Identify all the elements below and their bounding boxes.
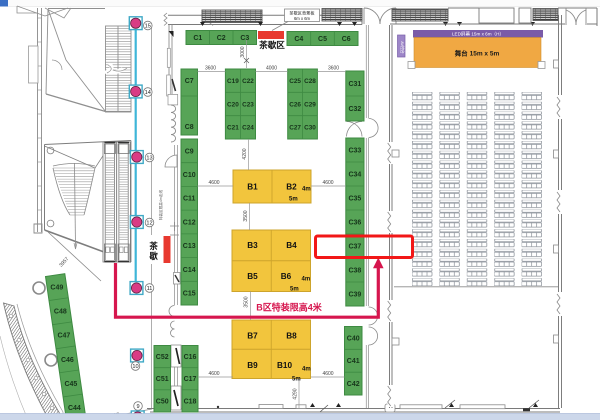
svg-text:C37: C37 bbox=[348, 243, 361, 250]
svg-text:B7: B7 bbox=[247, 332, 258, 341]
svg-text:B2: B2 bbox=[286, 183, 297, 192]
svg-text:B6: B6 bbox=[281, 272, 292, 281]
svg-text:C52: C52 bbox=[156, 354, 169, 361]
svg-text:3500: 3500 bbox=[243, 210, 249, 221]
svg-text:B区特装限高4米: B区特装限高4米 bbox=[256, 302, 323, 313]
svg-text:C3: C3 bbox=[240, 35, 249, 42]
svg-text:C35: C35 bbox=[348, 195, 361, 202]
svg-text:C8: C8 bbox=[185, 124, 194, 131]
svg-text:3500: 3500 bbox=[244, 296, 250, 307]
svg-text:C4: C4 bbox=[294, 36, 303, 43]
svg-text:C34: C34 bbox=[348, 171, 361, 178]
svg-text:C48: C48 bbox=[54, 309, 67, 316]
svg-text:4m: 4m bbox=[302, 187, 311, 193]
svg-text:C19: C19 bbox=[227, 78, 239, 85]
svg-text:C14: C14 bbox=[183, 267, 196, 274]
svg-text:C15: C15 bbox=[183, 291, 196, 298]
svg-text:11: 11 bbox=[147, 286, 153, 292]
svg-text:C13: C13 bbox=[183, 243, 196, 250]
svg-text:C28: C28 bbox=[304, 78, 316, 85]
svg-text:12: 12 bbox=[146, 221, 152, 227]
svg-text:4600: 4600 bbox=[322, 180, 333, 186]
svg-text:C39: C39 bbox=[348, 291, 361, 298]
svg-text:C17: C17 bbox=[184, 376, 197, 383]
svg-text:C33: C33 bbox=[348, 147, 361, 154]
svg-text:4m: 4m bbox=[302, 277, 311, 283]
svg-text:C16: C16 bbox=[184, 354, 197, 361]
svg-text:C22: C22 bbox=[242, 78, 254, 85]
svg-text:C6: C6 bbox=[342, 36, 351, 43]
svg-text:LED屏幕 15m x 6m（H）: LED屏幕 15m x 6m（H） bbox=[452, 30, 504, 37]
svg-text:4600: 4600 bbox=[322, 371, 333, 377]
svg-text:C20: C20 bbox=[227, 101, 239, 108]
svg-text:C18: C18 bbox=[184, 398, 197, 405]
svg-text:C12: C12 bbox=[183, 219, 196, 226]
svg-text:歇: 歇 bbox=[148, 251, 158, 261]
svg-text:C7: C7 bbox=[185, 78, 194, 85]
svg-text:C26: C26 bbox=[289, 101, 301, 108]
svg-text:C51: C51 bbox=[156, 376, 169, 383]
svg-text:C2: C2 bbox=[217, 35, 226, 42]
svg-text:13: 13 bbox=[146, 156, 152, 162]
svg-text:3600: 3600 bbox=[205, 66, 216, 72]
svg-text:4600: 4600 bbox=[208, 371, 219, 377]
svg-text:C41: C41 bbox=[347, 358, 360, 365]
svg-text:C11: C11 bbox=[183, 196, 196, 203]
svg-text:10: 10 bbox=[132, 364, 138, 370]
svg-text:4290: 4290 bbox=[293, 388, 299, 399]
svg-text:舞台 15m x 5m: 舞台 15m x 5m bbox=[455, 49, 500, 58]
svg-text:C44: C44 bbox=[68, 405, 81, 412]
svg-text:C9: C9 bbox=[185, 148, 194, 155]
svg-text:B4: B4 bbox=[286, 241, 297, 250]
svg-text:C23: C23 bbox=[242, 101, 254, 108]
svg-text:B10: B10 bbox=[277, 361, 292, 370]
svg-text:4600: 4600 bbox=[208, 180, 219, 186]
svg-text:C32: C32 bbox=[348, 106, 361, 113]
svg-text:C21: C21 bbox=[227, 125, 239, 132]
svg-text:15: 15 bbox=[145, 24, 151, 30]
svg-text:3000: 3000 bbox=[240, 46, 246, 57]
svg-text:5m: 5m bbox=[290, 287, 299, 293]
svg-text:C31: C31 bbox=[348, 81, 361, 88]
svg-text:C42: C42 bbox=[347, 381, 360, 388]
svg-text:C5: C5 bbox=[318, 36, 327, 43]
svg-text:C10: C10 bbox=[183, 172, 196, 179]
svg-text:C30: C30 bbox=[304, 125, 316, 132]
svg-text:B1: B1 bbox=[247, 183, 258, 192]
svg-text:B9: B9 bbox=[247, 361, 258, 370]
svg-text:C29: C29 bbox=[304, 101, 316, 108]
svg-text:C1: C1 bbox=[193, 35, 202, 42]
svg-text:C50: C50 bbox=[156, 398, 169, 405]
svg-text:4m: 4m bbox=[302, 367, 311, 373]
svg-text:特装区限高4m走线: 特装区限高4m走线 bbox=[158, 190, 163, 221]
svg-text:C46: C46 bbox=[61, 357, 74, 364]
svg-text:C38: C38 bbox=[348, 267, 361, 274]
svg-text:B3: B3 bbox=[247, 241, 258, 250]
svg-text:AV控台: AV控台 bbox=[400, 41, 405, 54]
svg-text:14: 14 bbox=[145, 90, 151, 96]
svg-text:4200: 4200 bbox=[242, 148, 248, 159]
svg-text:4000: 4000 bbox=[266, 66, 277, 72]
svg-text:C49: C49 bbox=[50, 285, 63, 292]
svg-text:6m x 6m: 6m x 6m bbox=[294, 16, 311, 21]
svg-text:C24: C24 bbox=[242, 125, 254, 132]
svg-text:C47: C47 bbox=[57, 333, 70, 340]
svg-text:C27: C27 bbox=[289, 125, 301, 132]
svg-text:茶歇区: 茶歇区 bbox=[258, 39, 285, 50]
svg-text:B8: B8 bbox=[286, 332, 297, 341]
svg-text:C25: C25 bbox=[289, 78, 301, 85]
svg-text:C40: C40 bbox=[347, 335, 360, 342]
svg-text:茶: 茶 bbox=[148, 241, 158, 251]
svg-text:3600: 3600 bbox=[328, 66, 339, 72]
svg-text:B5: B5 bbox=[247, 272, 258, 281]
svg-text:9: 9 bbox=[136, 404, 139, 410]
svg-text:C45: C45 bbox=[64, 381, 77, 388]
svg-text:5m: 5m bbox=[292, 377, 301, 383]
svg-text:C36: C36 bbox=[348, 219, 361, 226]
svg-text:5m: 5m bbox=[289, 197, 298, 203]
